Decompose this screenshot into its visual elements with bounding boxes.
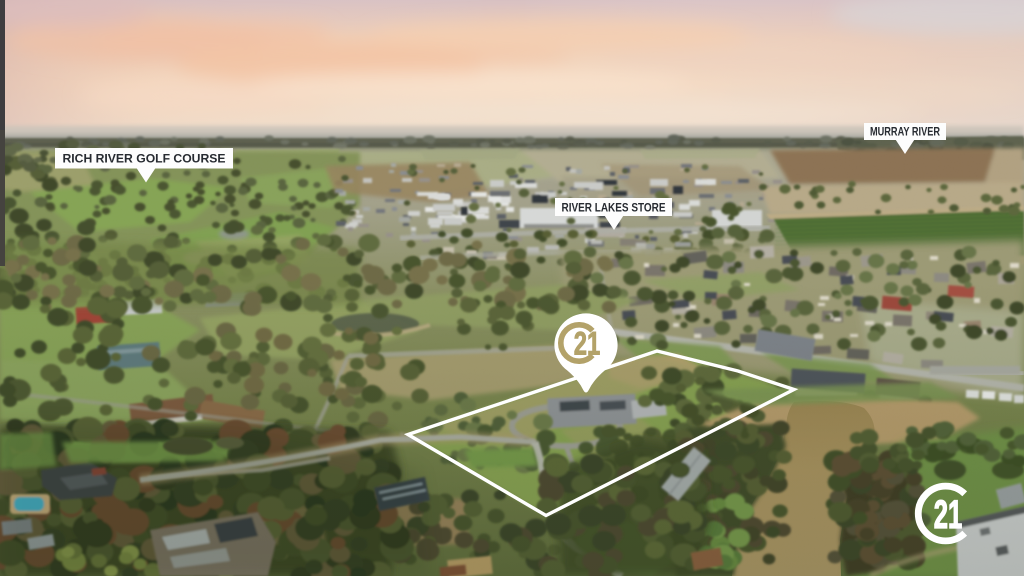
svg-text:21: 21 <box>934 493 963 537</box>
svg-text:21: 21 <box>574 326 601 362</box>
svg-text:RIVER LAKES STORE: RIVER LAKES STORE <box>562 200 666 214</box>
svg-text:RICH RIVER GOLF COURSE: RICH RIVER GOLF COURSE <box>63 152 226 166</box>
svg-text:MURRAY RIVER: MURRAY RIVER <box>870 127 941 139</box>
